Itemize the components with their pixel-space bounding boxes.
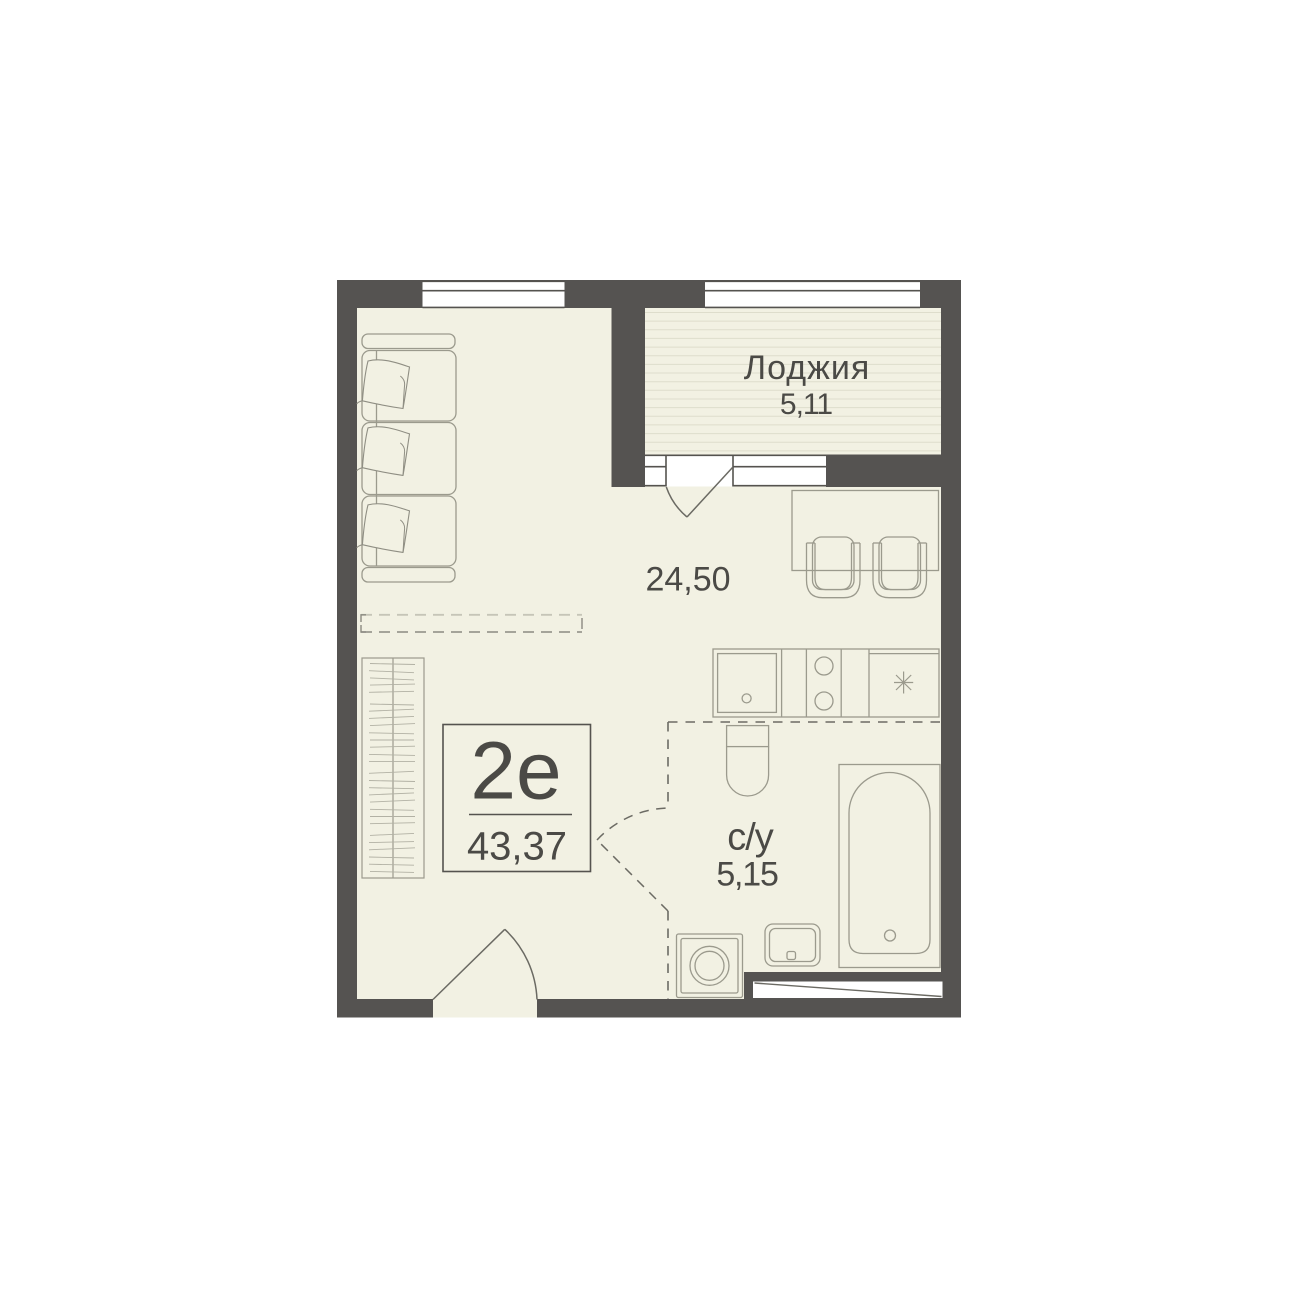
svg-text:5,15: 5,15 [716, 856, 778, 894]
svg-text:2е: 2е [470, 726, 561, 817]
svg-text:Лоджия: Лоджия [744, 349, 870, 387]
svg-text:43,37: 43,37 [467, 825, 567, 869]
svg-text:5,11: 5,11 [780, 388, 832, 421]
svg-text:с/у: с/у [727, 817, 774, 859]
svg-text:24,50: 24,50 [645, 560, 730, 598]
